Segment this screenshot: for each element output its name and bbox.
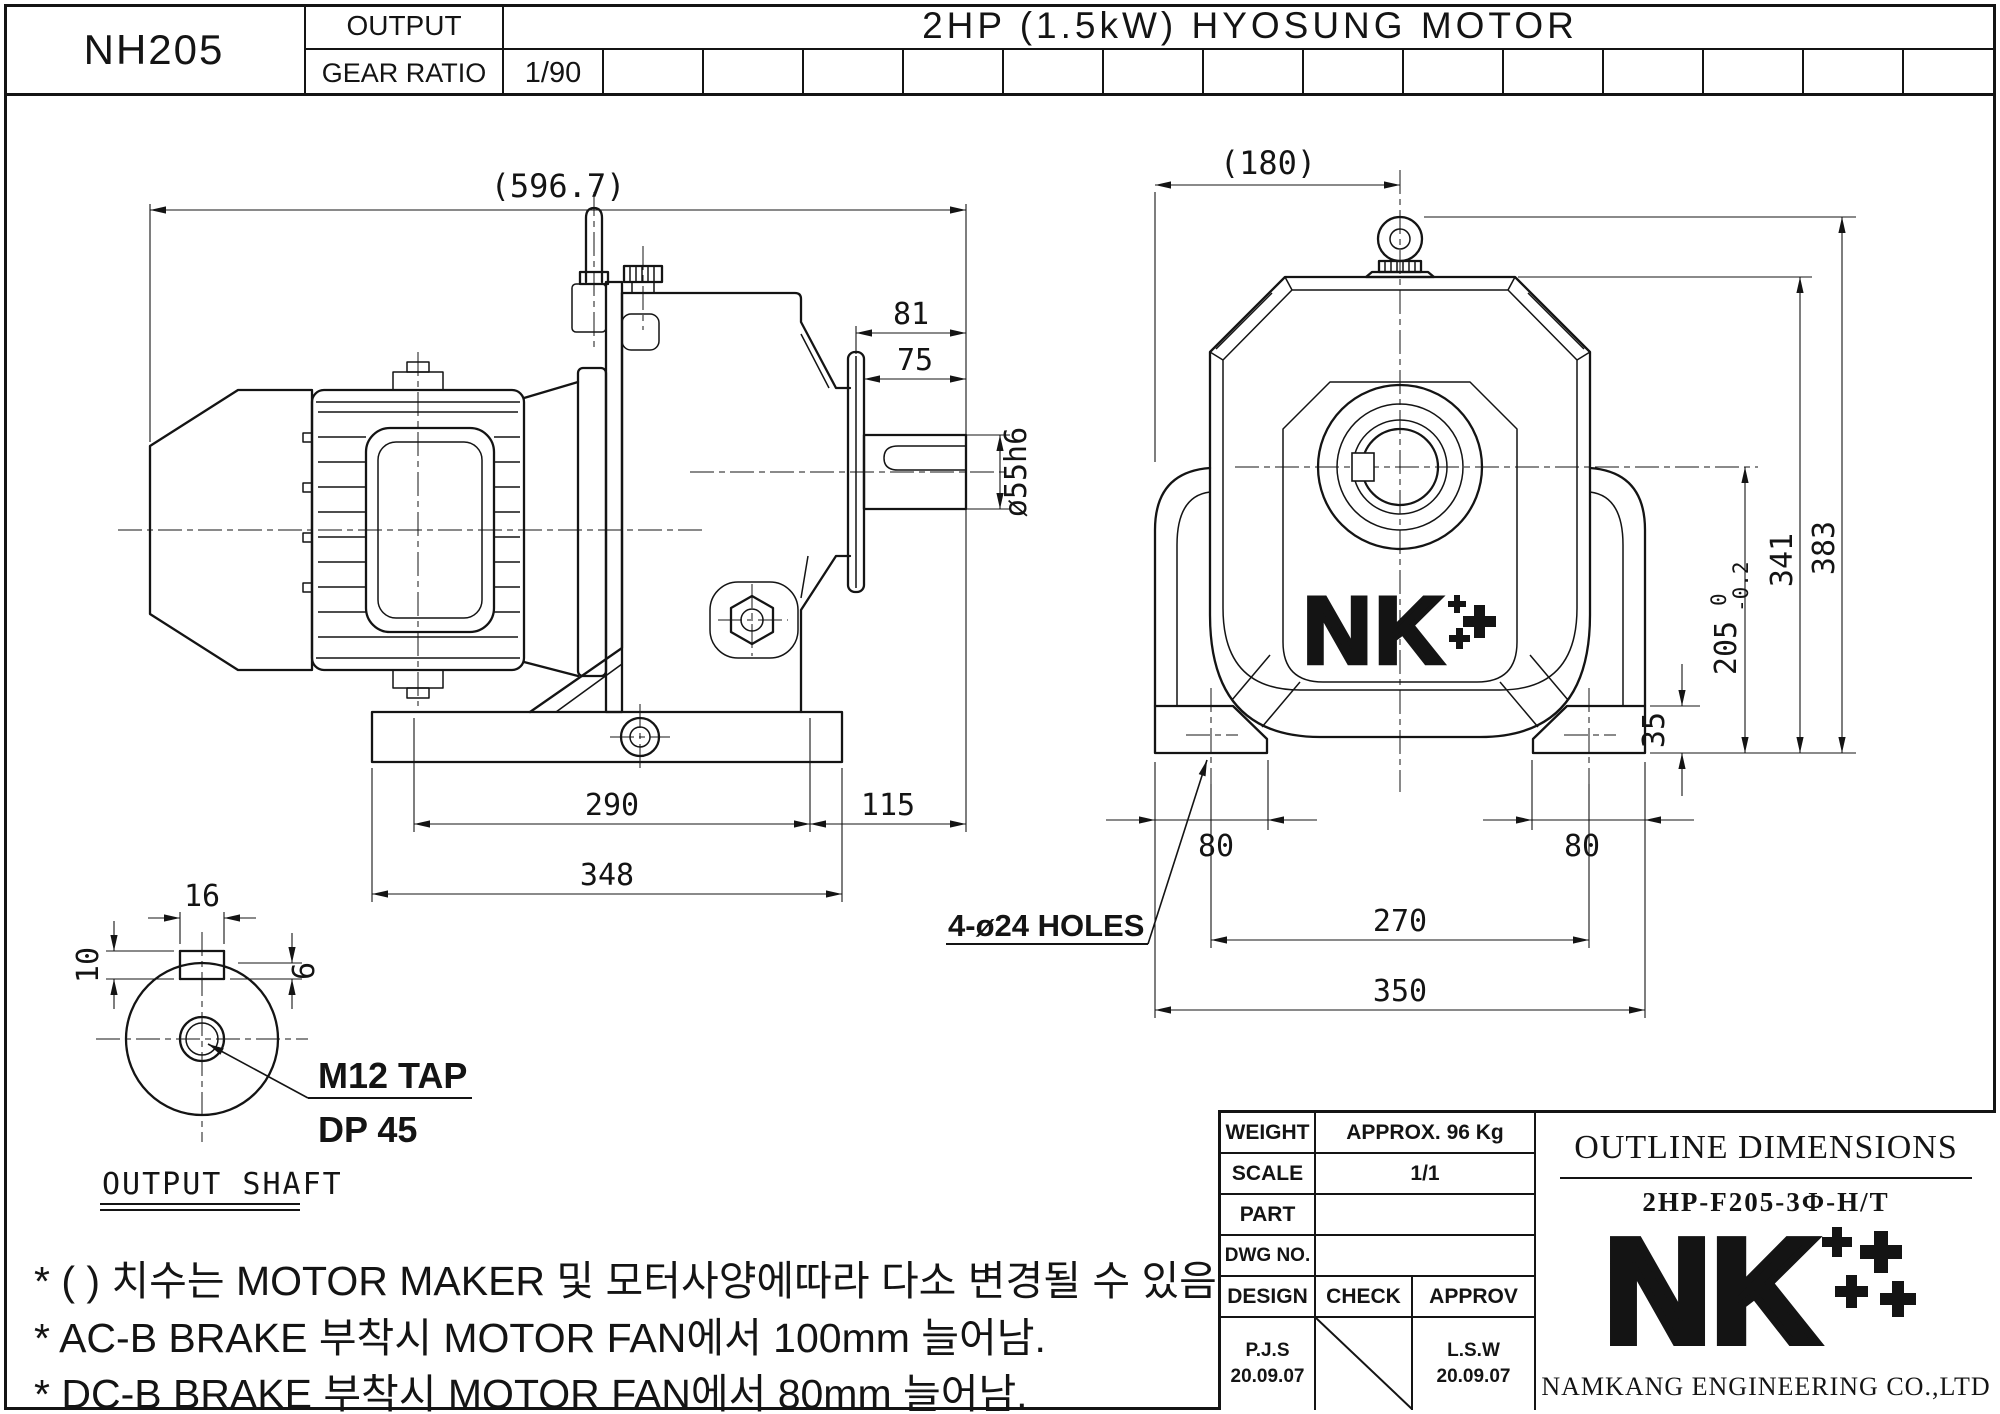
title-block-company-panel: OUTLINE DIMENSIONS 2HP-F205-3Φ-H/T NK NA… [1536, 1113, 1996, 1410]
dim-key-offset: 10 [71, 947, 106, 983]
tap-note-line2: DP 45 [318, 1109, 417, 1150]
dim-hole-pitch: 270 [1373, 904, 1427, 939]
company-logo-text: NK [1604, 1218, 1818, 1366]
design-header: DESIGN [1221, 1277, 1316, 1318]
output-shaft-detail: 16 10 6 M12 TAP DP 45 OUTPUT SHAFT [71, 879, 472, 1210]
dim-height-center-tol-lower: -0.2 [1729, 561, 1753, 612]
dim-shaft-ext-total: 81 [893, 297, 929, 332]
holes-callout: 4-ø24 HOLES [948, 908, 1144, 943]
dim-base-span: 290 [585, 788, 639, 823]
base-plate [372, 712, 842, 762]
weight-label: WEIGHT [1221, 1113, 1316, 1154]
dim-foot-width-right: 80 [1564, 829, 1600, 864]
dim-base-width: 350 [1373, 974, 1427, 1009]
doc-title-rule [1560, 1177, 1972, 1179]
side-view: (596.7) 81 75 ø55h6 290 115 [118, 167, 1034, 902]
check-header: CHECK [1316, 1277, 1413, 1318]
dim-key-width: 16 [184, 879, 220, 914]
dim-base-length: 348 [580, 858, 634, 893]
approv-header: APPROV [1413, 1277, 1536, 1318]
dim-height-center-tol-upper: 0 [1707, 593, 1731, 606]
title-block: WEIGHT APPROX. 96 Kg SCALE 1/1 PART DWG … [1218, 1110, 1996, 1410]
dim-shaft-length: 75 [897, 343, 933, 378]
gearbox-case [530, 208, 864, 756]
bore-keyway [1352, 453, 1374, 481]
scale-label: SCALE [1221, 1154, 1316, 1195]
dim-foot-height: 35 [1637, 712, 1672, 748]
approv-name: L.S.W [1447, 1338, 1500, 1364]
dwg-no-value [1316, 1236, 1536, 1277]
scale-value: 1/1 [1316, 1154, 1536, 1195]
dim-height-housing: 341 [1765, 533, 1800, 587]
check-signature [1316, 1318, 1413, 1410]
tap-note-line1: M12 TAP [318, 1055, 467, 1096]
face-logo: NK [1303, 578, 1496, 684]
company-logo: NK [1536, 1217, 1996, 1367]
front-view-centerlines [1186, 170, 1758, 792]
part-label: PART [1221, 1195, 1316, 1236]
note-line-1: * ( ) 치수는 MOTOR MAKER 및 모터사양에따라 다소 변경될 수… [34, 1247, 1228, 1307]
design-signature: P.J.S 20.09.07 [1221, 1318, 1316, 1410]
side-view-centerlines [118, 192, 1006, 770]
note-line-2: * AC-B BRAKE 부착시 MOTOR FAN에서 100mm 늘어남. [34, 1304, 1046, 1364]
side-view-dimensions: (596.7) 81 75 ø55h6 290 115 [150, 167, 1034, 902]
design-date: 20.09.07 [1231, 1364, 1305, 1390]
design-name: P.J.S [1245, 1338, 1289, 1364]
approv-signature: L.S.W 20.09.07 [1413, 1318, 1536, 1410]
company-name: NAMKANG ENGINEERING CO.,LTD [1536, 1372, 1996, 1402]
dwg-no-label: DWG NO. [1221, 1236, 1316, 1277]
empty-cell-slash [1316, 1318, 1411, 1410]
drawing-sheet: NH205 OUTPUT GEAR RATIO 2HP (1.5kW) HYOS… [0, 0, 2000, 1414]
dim-base-overhang: 115 [861, 788, 915, 823]
dim-height-overall: 383 [1807, 521, 1842, 575]
dim-height-center: 205 [1709, 621, 1744, 675]
face-logo-text: NK [1303, 578, 1446, 684]
note-line-3: * DC-B BRAKE 부착시 MOTOR FAN에서 80mm 늘어남. [34, 1360, 1028, 1414]
dim-foot-width-left: 80 [1198, 829, 1234, 864]
logo-sparkles-icon [1818, 1219, 1928, 1329]
shaft-detail-dimensions: 16 10 6 [71, 879, 322, 1009]
front-view: NK (180) 205 0 [946, 144, 1856, 1018]
dim-shaft-dia: ø55h6 [999, 427, 1034, 517]
dim-width-to-center: (180) [1220, 144, 1316, 182]
tap-callout: M12 TAP DP 45 [208, 1044, 472, 1150]
dim-overall-length: (596.7) [491, 167, 626, 205]
weight-value: APPROX. 96 Kg [1316, 1113, 1536, 1154]
dim-key-depth: 6 [287, 962, 322, 980]
approv-date: 20.09.07 [1437, 1364, 1511, 1390]
motor-fins [303, 412, 520, 637]
shaft-detail-title: OUTPUT SHAFT [102, 1167, 343, 1202]
doc-title: OUTLINE DIMENSIONS [1536, 1129, 1996, 1167]
part-value [1316, 1195, 1536, 1236]
logo-sparkles-icon [1448, 595, 1496, 649]
